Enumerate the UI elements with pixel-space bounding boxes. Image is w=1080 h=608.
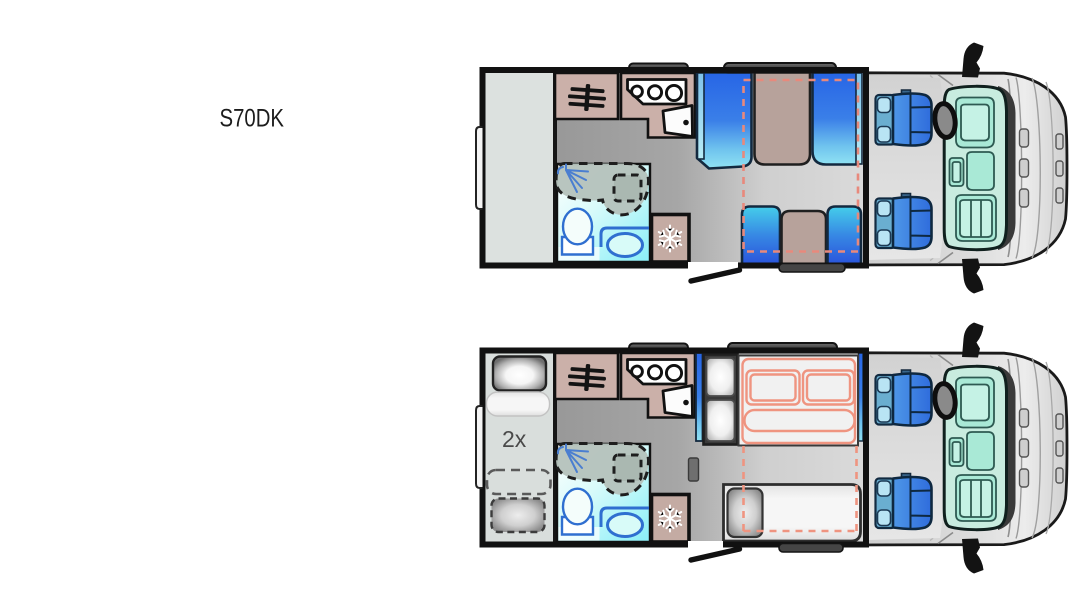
svg-text:S70DK: S70DK (220, 105, 285, 133)
svg-text:2x: 2x (502, 426, 527, 452)
